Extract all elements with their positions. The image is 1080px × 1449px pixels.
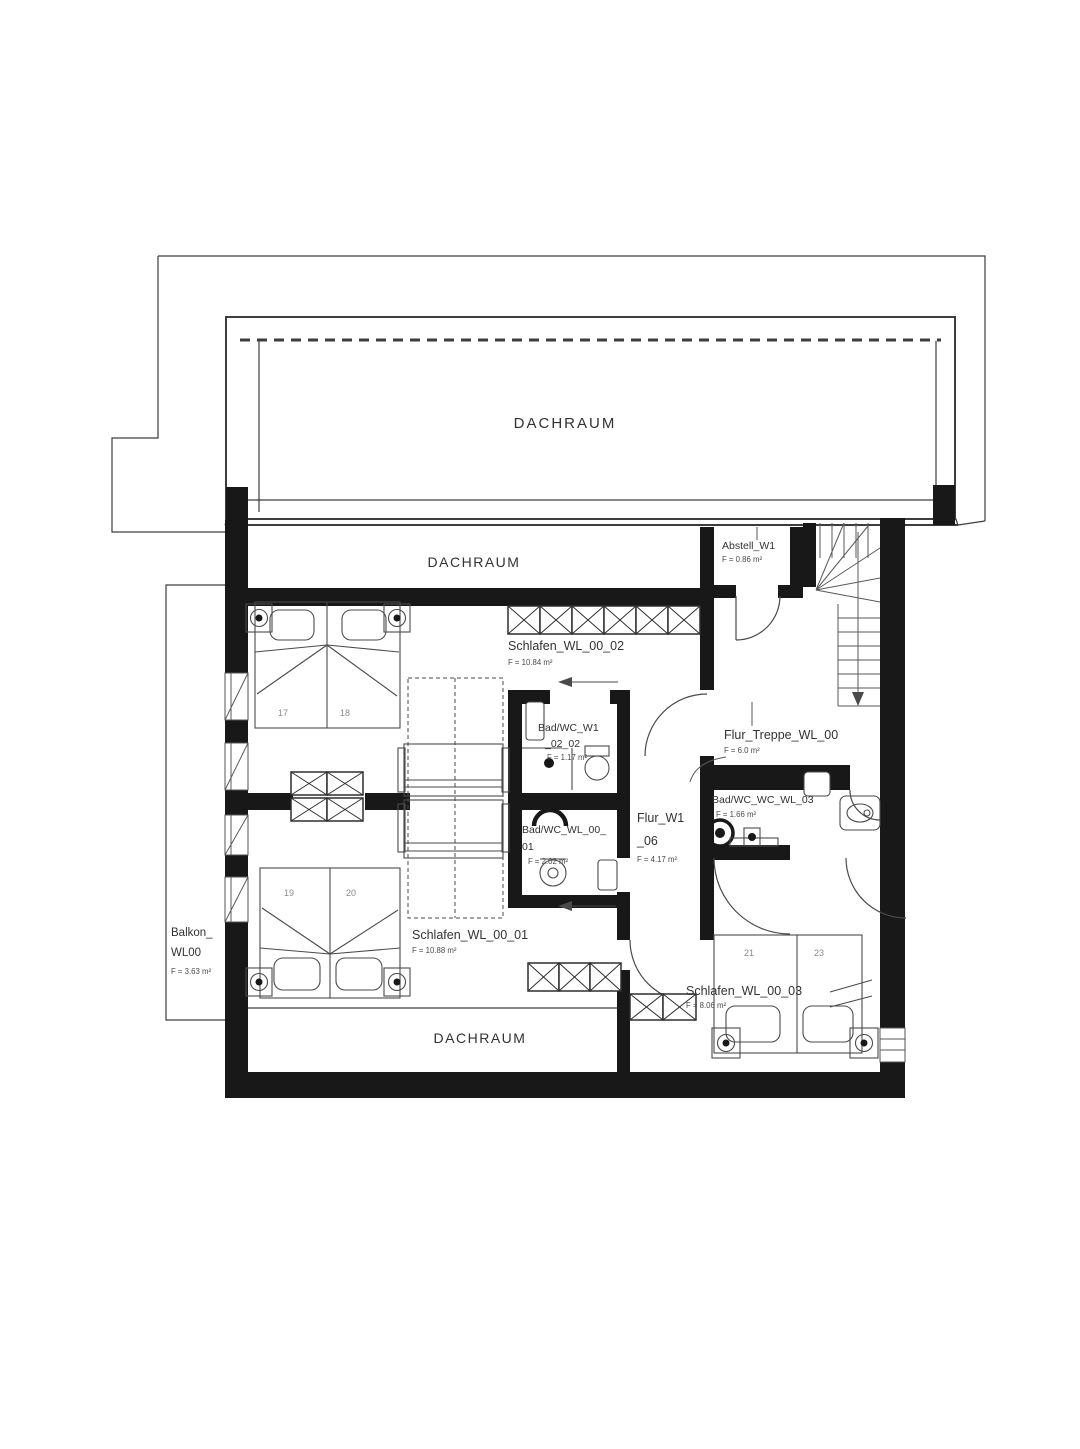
ceiling-lamp-icon (384, 968, 410, 996)
room-label-schlafen-02: Schlafen_WL_00_02 (508, 639, 624, 653)
bed-number: 21 (744, 948, 754, 958)
room-label-schlafen-01: Schlafen_WL_00_01 (412, 928, 528, 942)
room-label-balkon-2: WL00 (171, 947, 201, 959)
room-label-schlafen-03: Schlafen_WL_00_03 (686, 984, 802, 998)
room-label-bad-01-1: Bad/WC_WL_00_ (522, 824, 606, 836)
room-area-schlafen-01: F = 10.88 m² (412, 946, 457, 955)
door-leaf-bad02 (526, 702, 544, 740)
bed-number: 20 (346, 888, 356, 898)
room-area-schlafen-02: F = 10.84 m² (508, 658, 553, 667)
center-furniture (398, 678, 509, 918)
floor-plan-page: DACHRAUM Balkon_ WL00 F = 3.63 m² (0, 0, 1080, 1449)
balcony-outline: Balkon_ WL00 F = 3.63 m² (166, 585, 225, 1020)
room-label-abstell: Abstell_W1 (722, 540, 775, 552)
ceiling-lamp-icon (384, 604, 410, 632)
room-label-bad-02-2: _02_02 (544, 738, 580, 750)
room-label-flur-06-2: _06 (636, 834, 658, 848)
top-attic-outline: DACHRAUM (112, 256, 985, 532)
washbasin-icon (744, 828, 760, 846)
bed-number: 17 (278, 708, 288, 718)
room-label-balkon-1: Balkon_ (171, 927, 213, 939)
bathroom-01-fixtures (534, 810, 566, 886)
ceiling-lamp-icon (246, 604, 272, 632)
stair-direction-arrow (852, 692, 864, 706)
window (225, 815, 248, 855)
room-label-bad-02-1: Bad/WC_W1 (538, 722, 599, 734)
room-label-bad-01-2: 01 (522, 841, 534, 853)
room-area-schlafen-03: F = 8.06 m² (686, 1001, 726, 1010)
room-label-dachraum-top: DACHRAUM (514, 415, 617, 432)
shower-bad03 (804, 772, 830, 796)
door-leaf-bad01 (598, 860, 617, 890)
room-area-abstell: F = 0.86 m² (722, 555, 762, 564)
room-label-bad-03: Bad/WC_WC_WL_03 (712, 794, 814, 806)
staircase (816, 523, 880, 706)
room-label-dachraum-bottom: DACHRAUM (434, 1030, 527, 1046)
room-area-flur-06: F = 4.17 m² (637, 855, 677, 864)
room-label-flur-06-1: Flur_W1 (637, 811, 684, 825)
window (225, 673, 248, 720)
room-area-flur-treppe: F = 6.0 m² (724, 746, 760, 755)
floor-plan-drawing: DACHRAUM Balkon_ WL00 F = 3.63 m² (0, 0, 1080, 1449)
ceiling-lamp-icon (246, 968, 272, 996)
bed-symbol-19-20: 19 20 (260, 868, 400, 998)
door-arc-corridor (630, 940, 692, 1002)
arrow-left-icon (558, 677, 572, 687)
room-label-flur-treppe: Flur_Treppe_WL_00 (724, 728, 838, 742)
bed-number: 18 (340, 708, 350, 718)
room-area-bad-01: F = 2.02 m² (528, 857, 568, 866)
room-area-bad-03: F = 1.66 m² (716, 810, 756, 819)
bed-number: 23 (814, 948, 824, 958)
room-area-bad-02: F = 1.17 m² (547, 753, 587, 762)
window (880, 1028, 905, 1062)
room-area-balkon: F = 3.63 m² (171, 967, 211, 976)
door-arc-abstell (736, 596, 780, 640)
toilet-icon (585, 746, 609, 780)
window (225, 743, 248, 790)
door-arc-schlafen03-left (714, 858, 790, 934)
door-arc-flur (645, 694, 707, 756)
window (225, 877, 248, 922)
bed-number: 19 (284, 888, 294, 898)
room-label-dachraum-mid: DACHRAUM (428, 554, 521, 570)
bed-symbol-17-18: 17 18 (255, 602, 400, 728)
